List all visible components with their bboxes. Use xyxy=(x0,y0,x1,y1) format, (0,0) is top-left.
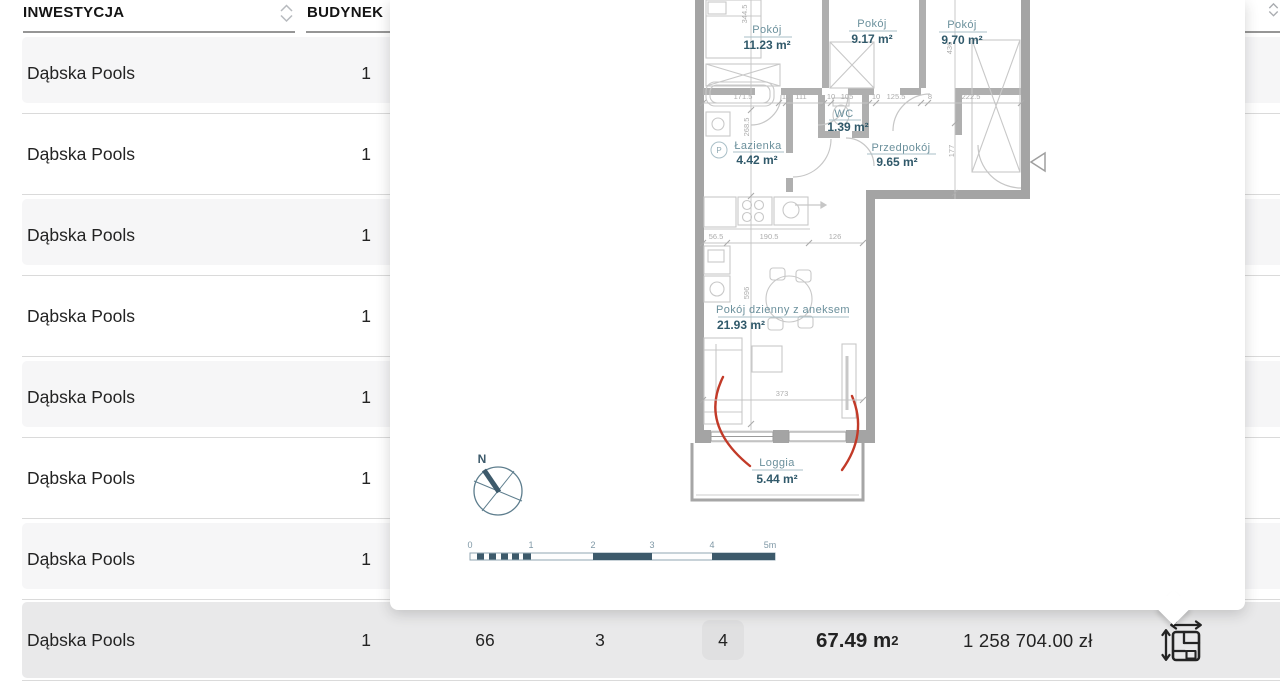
svg-text:10: 10 xyxy=(782,92,790,101)
rooms-badge: 4 xyxy=(702,620,744,660)
svg-text:11.23 m²: 11.23 m² xyxy=(743,38,790,52)
svg-text:4.42 m²: 4.42 m² xyxy=(736,153,777,167)
svg-text:P: P xyxy=(716,146,721,155)
dimension-lines xyxy=(703,0,1021,430)
svg-text:Pokój dzienny z aneksem: Pokój dzienny z aneksem xyxy=(716,304,850,316)
svg-text:111: 111 xyxy=(795,92,806,101)
row-separator xyxy=(22,680,1280,681)
area-value: 67.49 m xyxy=(816,629,891,653)
sort-icon[interactable] xyxy=(1267,2,1280,23)
svg-text:9.65 m²: 9.65 m² xyxy=(876,155,917,169)
svg-text:2: 2 xyxy=(590,540,595,550)
floorplan-tooltip-popup: 171.5 10 111 10 105 10 125.5 8 222.5 56.… xyxy=(390,0,1245,610)
svg-text:1: 1 xyxy=(528,540,533,550)
svg-text:190.5: 190.5 xyxy=(760,232,779,241)
svg-text:8: 8 xyxy=(928,92,932,101)
cell-area: 67.49 m2 xyxy=(816,600,898,681)
floorplan-drawing: 171.5 10 111 10 105 10 125.5 8 222.5 56.… xyxy=(390,0,1245,610)
cell-inwestycja: Dąbska Pools xyxy=(27,276,135,357)
svg-text:Łazienka: Łazienka xyxy=(734,140,782,152)
cell-inwestycja: Dąbska Pools xyxy=(27,519,135,600)
cell-budynek: 1 xyxy=(290,33,371,114)
svg-text:21.93 m²: 21.93 m² xyxy=(717,318,765,332)
exterior-walls xyxy=(695,0,1030,432)
cell-inwestycja: Dąbska Pools xyxy=(27,357,135,438)
svg-text:105: 105 xyxy=(841,92,854,101)
cell-budynek: 1 xyxy=(290,114,371,195)
cell-budynek: 1 xyxy=(290,357,371,438)
svg-text:Pokój: Pokój xyxy=(857,18,887,30)
svg-text:596: 596 xyxy=(742,287,751,300)
cell-inwestycja: Dąbska Pools xyxy=(27,114,135,195)
svg-text:Loggia: Loggia xyxy=(759,457,795,469)
cell-budynek: 1 xyxy=(290,195,371,276)
svg-text:9.17 m²: 9.17 m² xyxy=(851,32,892,46)
svg-text:10: 10 xyxy=(872,92,880,101)
svg-text:Przedpokój: Przedpokój xyxy=(871,142,930,154)
compass-icon: N xyxy=(474,452,522,515)
cell-inwestycja: Dąbska Pools xyxy=(27,195,135,276)
entrance-triangle-marker xyxy=(1031,153,1045,171)
svg-text:125.5: 125.5 xyxy=(887,92,906,101)
appliance-badge: P xyxy=(711,142,727,158)
column-header-budynek[interactable]: BUDYNEK xyxy=(307,4,383,21)
svg-text:5m: 5m xyxy=(764,540,777,550)
cell-number: 66 xyxy=(450,600,520,681)
svg-text:344.5: 344.5 xyxy=(740,5,749,24)
svg-text:10: 10 xyxy=(827,92,835,101)
cell-price: 1 258 704.00 zł xyxy=(963,600,1093,681)
table-row-selected[interactable]: Dąbska Pools 1 66 3 4 67.49 m2 1 258 704… xyxy=(0,600,1280,681)
cell-budynek: 1 xyxy=(290,438,371,519)
svg-text:Pokój: Pokój xyxy=(752,24,782,36)
cell-inwestycja: Dąbska Pools xyxy=(27,438,135,519)
estate-table-page: { "colors": { "stripe_row": "#f6f6f7", "… xyxy=(0,0,1280,694)
svg-text:0: 0 xyxy=(467,540,472,550)
sort-icon[interactable] xyxy=(278,3,295,29)
svg-text:126: 126 xyxy=(829,232,842,241)
cell-floor: 3 xyxy=(565,600,635,681)
cell-inwestycja: Dąbska Pools xyxy=(27,33,135,114)
svg-text:268.5: 268.5 xyxy=(742,118,751,137)
cell-budynek: 1 xyxy=(290,519,371,600)
cell-inwestycja: Dąbska Pools xyxy=(27,600,135,681)
svg-text:56.5: 56.5 xyxy=(709,232,724,241)
cell-budynek: 1 xyxy=(290,600,371,681)
svg-text:373: 373 xyxy=(776,389,789,398)
svg-text:Pokój: Pokój xyxy=(947,19,977,31)
svg-text:222.5: 222.5 xyxy=(962,92,981,101)
column-header-inwestycja[interactable]: INWESTYCJA xyxy=(23,4,124,21)
svg-text:177: 177 xyxy=(947,145,956,158)
svg-text:1.39 m²: 1.39 m² xyxy=(827,120,868,134)
cell-budynek: 1 xyxy=(290,276,371,357)
svg-text:9.70 m²: 9.70 m² xyxy=(941,33,982,47)
svg-text:5.44 m²: 5.44 m² xyxy=(756,472,797,486)
svg-text:N: N xyxy=(478,452,487,466)
scale-bar: 0 1 2 3 4 5m xyxy=(467,540,776,560)
svg-text:3: 3 xyxy=(649,540,654,550)
svg-text:4: 4 xyxy=(709,540,714,550)
svg-text:WC: WC xyxy=(834,108,853,120)
svg-text:171.5: 171.5 xyxy=(734,92,753,101)
